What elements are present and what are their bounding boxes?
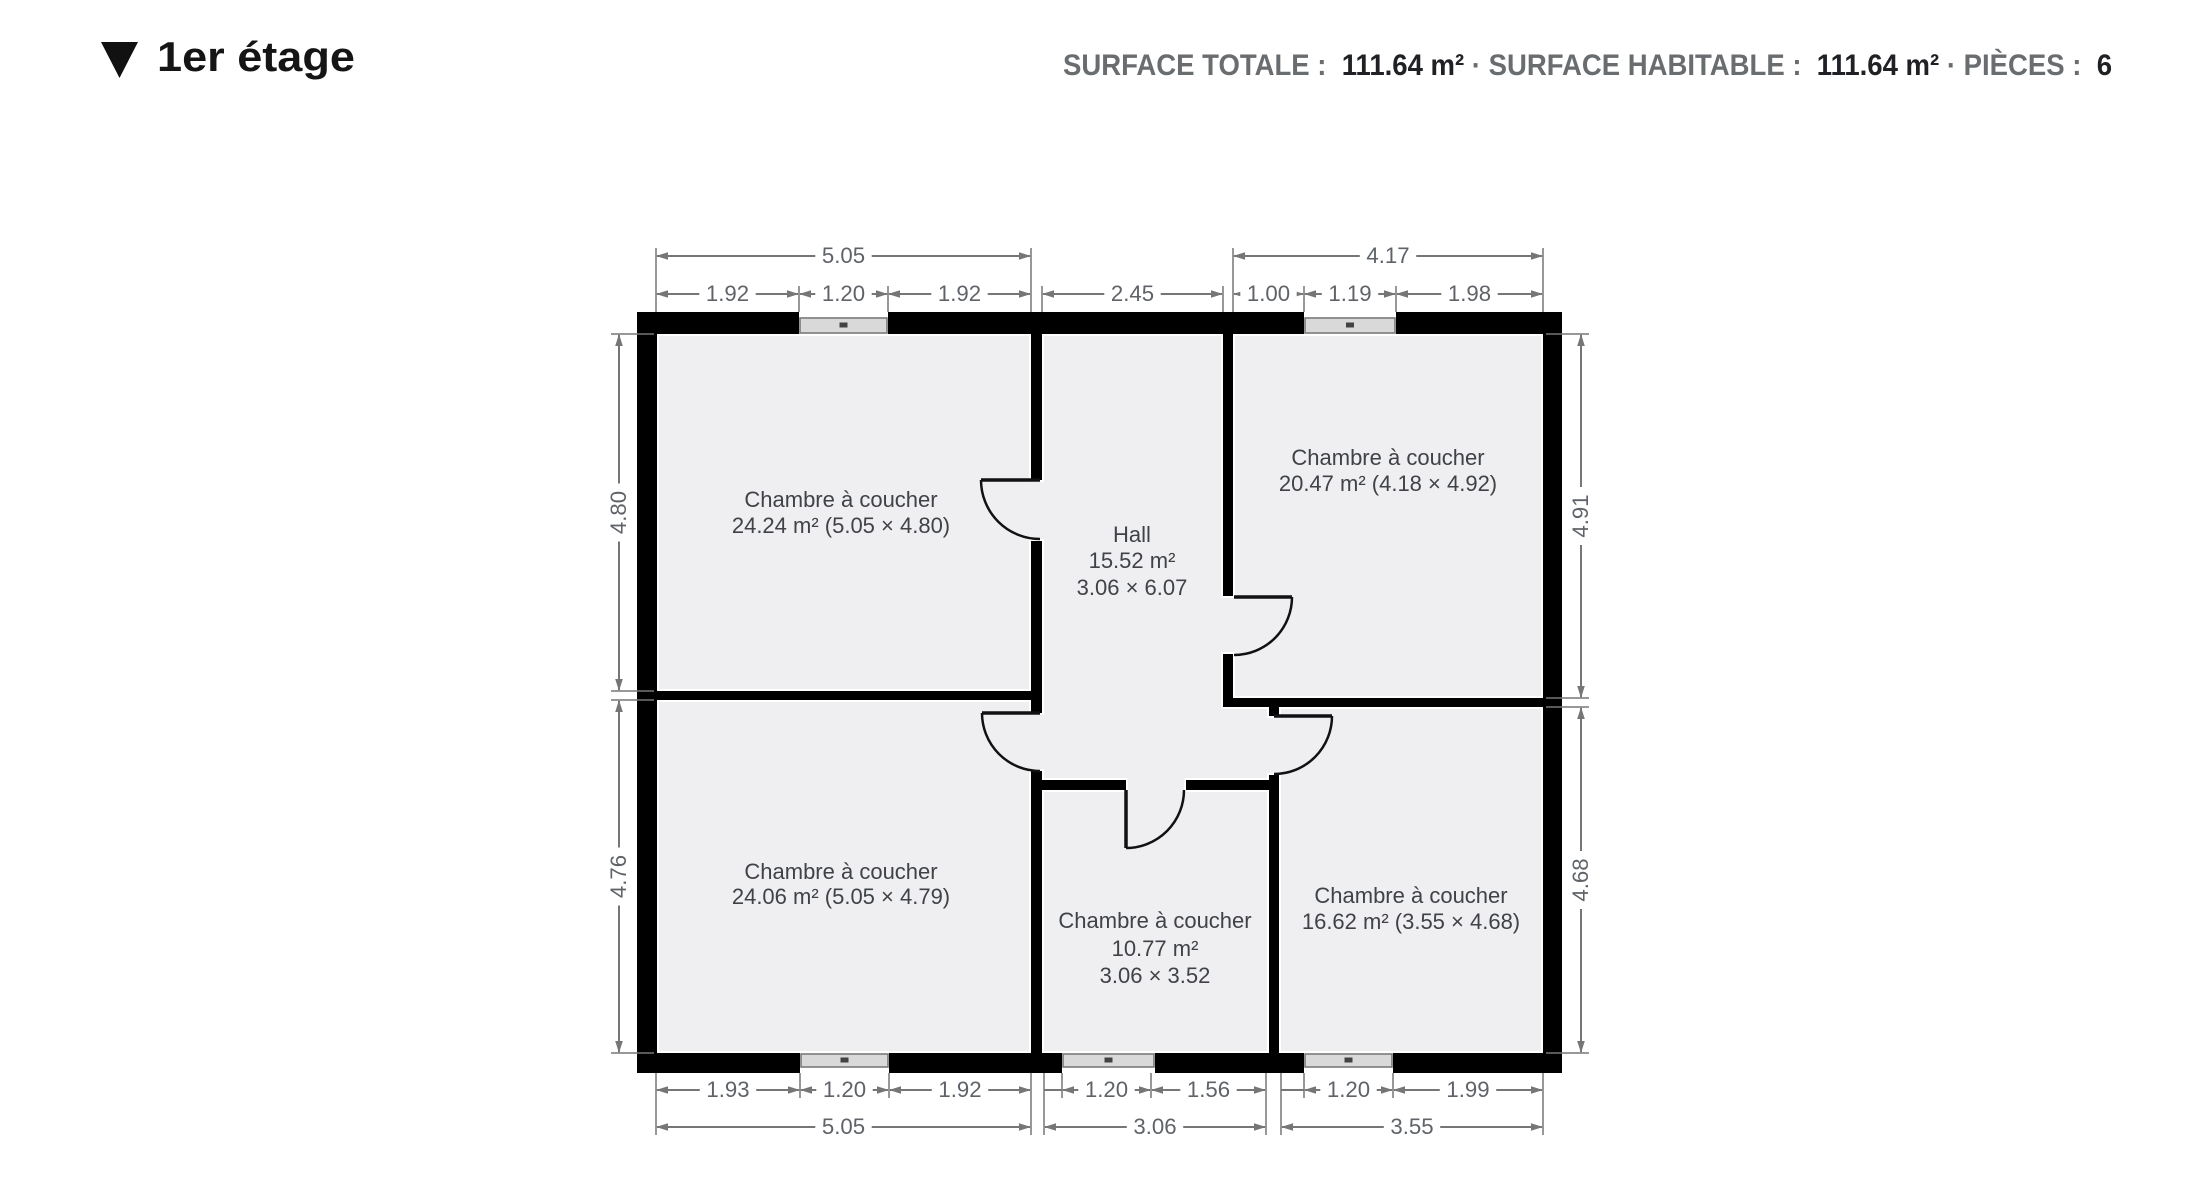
svg-text:4.68: 4.68 [1568,858,1593,901]
svg-text:1.00: 1.00 [1247,281,1290,306]
svg-text:1.99: 1.99 [1446,1077,1489,1102]
svg-text:3.06 × 3.52: 3.06 × 3.52 [1100,963,1211,988]
svg-text:1.56: 1.56 [1187,1077,1230,1102]
svg-text:1.92: 1.92 [938,1077,981,1102]
svg-text:2.45: 2.45 [1111,281,1154,306]
svg-text:1.98: 1.98 [1448,281,1491,306]
svg-text:1.20: 1.20 [823,1077,866,1102]
svg-text:Hall: Hall [1113,522,1151,547]
svg-text:16.62 m² (3.55 × 4.68): 16.62 m² (3.55 × 4.68) [1302,909,1520,934]
svg-text:Chambre à coucher: Chambre à coucher [1314,883,1507,908]
svg-text:1.92: 1.92 [938,281,981,306]
svg-text:10.77 m²: 10.77 m² [1112,936,1199,961]
svg-text:4.17: 4.17 [1366,243,1409,268]
svg-text:1.20: 1.20 [822,281,865,306]
svg-text:Chambre à coucher: Chambre à coucher [744,859,937,884]
svg-text:1.19: 1.19 [1328,281,1371,306]
svg-text:4.91: 4.91 [1568,494,1593,537]
svg-text:4.80: 4.80 [606,491,631,534]
svg-text:5.05: 5.05 [822,243,865,268]
svg-text:3.55: 3.55 [1390,1114,1433,1139]
svg-text:1.20: 1.20 [1327,1077,1370,1102]
svg-text:SURFACE TOTALE : 111.64 m² ·: SURFACE TOTALE : 111.64 m² · SURFACE HAB… [1063,48,2112,82]
svg-text:24.24 m² (5.05 × 4.80): 24.24 m² (5.05 × 4.80) [732,513,950,538]
svg-text:24.06 m² (5.05 × 4.79): 24.06 m² (5.05 × 4.79) [732,884,950,909]
svg-text:1.92: 1.92 [706,281,749,306]
svg-text:4.76: 4.76 [606,855,631,898]
svg-text:Chambre à coucher: Chambre à coucher [1291,445,1484,470]
svg-text:Chambre à coucher: Chambre à coucher [1058,908,1251,933]
svg-text:Chambre à coucher: Chambre à coucher [744,487,937,512]
svg-text:1.20: 1.20 [1085,1077,1128,1102]
svg-text:15.52 m²: 15.52 m² [1089,548,1176,573]
svg-text:3.06: 3.06 [1133,1114,1176,1139]
svg-text:3.06 × 6.07: 3.06 × 6.07 [1077,575,1188,600]
svg-text:1.93: 1.93 [706,1077,749,1102]
svg-text:1er étage: 1er étage [157,33,355,80]
svg-text:5.05: 5.05 [822,1114,865,1139]
svg-text:20.47 m² (4.18 × 4.92): 20.47 m² (4.18 × 4.92) [1279,471,1497,496]
